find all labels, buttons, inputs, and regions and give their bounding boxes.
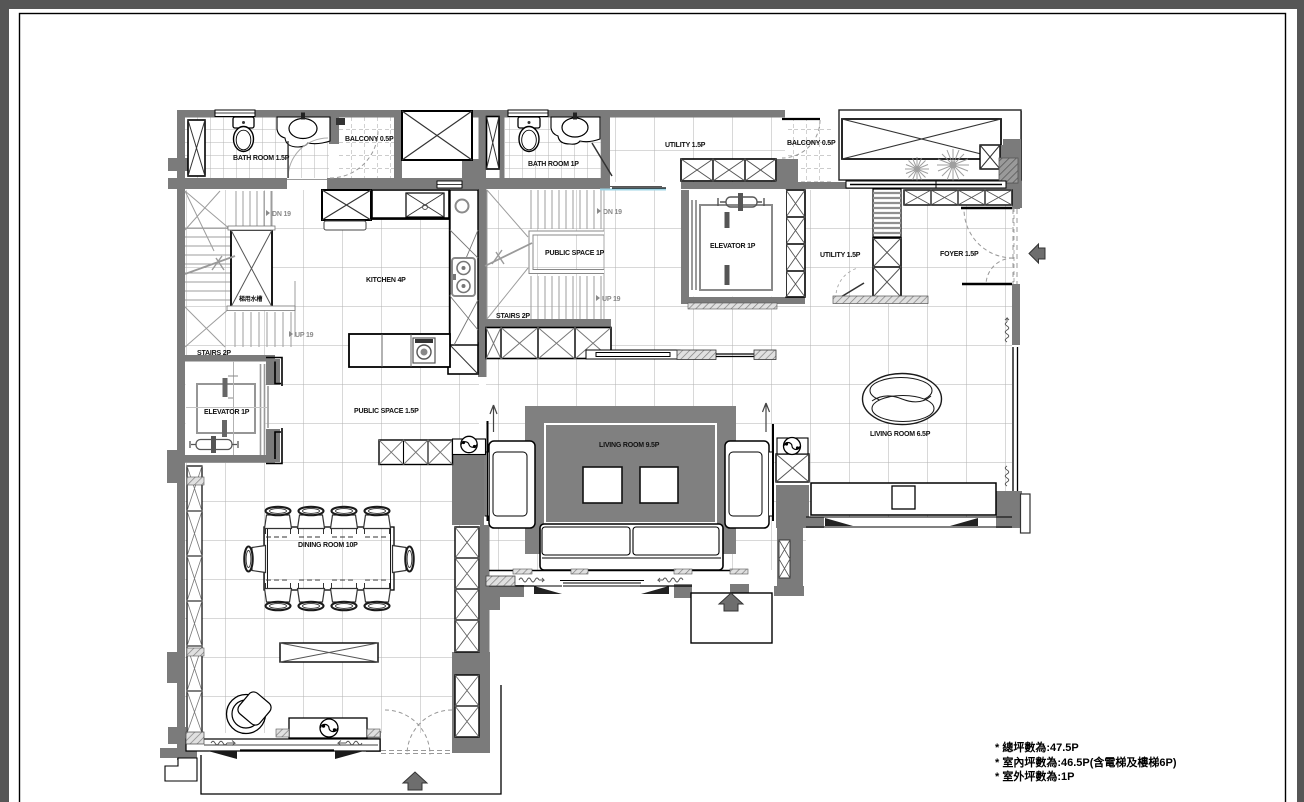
svg-text:DN 19: DN 19 [603,209,622,216]
svg-text:BALCONY 0.5P: BALCONY 0.5P [787,140,836,147]
svg-text:* 總坪數為:47.5P: * 總坪數為:47.5P [995,740,1079,754]
svg-text:BATH ROOM 1P: BATH ROOM 1P [528,161,579,168]
svg-text:STAIRS 2P: STAIRS 2P [197,350,231,357]
svg-text:ELEVATOR 1P: ELEVATOR 1P [204,409,250,416]
svg-text:PUBLIC SPACE 1.5P: PUBLIC SPACE 1.5P [354,408,419,415]
svg-text:STAIRS 2P: STAIRS 2P [496,313,530,320]
svg-text:梯用水槽: 梯用水槽 [239,295,262,303]
svg-text:FOYER 1.5P: FOYER 1.5P [940,251,979,258]
svg-text:UP 19: UP 19 [602,296,621,303]
svg-text:UTILITY 1.5P: UTILITY 1.5P [665,142,706,149]
svg-text:DN 19: DN 19 [272,211,291,218]
svg-text:KITCHEN 4P: KITCHEN 4P [366,277,406,284]
svg-text:UTILITY 1.5P: UTILITY 1.5P [820,252,861,259]
svg-text:UP 19: UP 19 [295,332,314,339]
svg-text:ELEVATOR 1P: ELEVATOR 1P [710,243,756,250]
svg-text:DINING ROOM 10P: DINING ROOM 10P [298,542,358,549]
svg-text:BALCONY 0.5P: BALCONY 0.5P [345,136,394,143]
svg-text:BATH ROOM 1.5P: BATH ROOM 1.5P [233,155,290,162]
svg-text:LIVING ROOM 9.5P: LIVING ROOM 9.5P [599,442,660,449]
svg-text:LIVING ROOM 6.5P: LIVING ROOM 6.5P [870,431,931,438]
svg-text:* 室內坪數為:46.5P(含電梯及樓梯6P): * 室內坪數為:46.5P(含電梯及樓梯6P) [995,755,1177,769]
svg-text:* 室外坪數為:1P: * 室外坪數為:1P [995,769,1074,783]
svg-text:PUBLIC SPACE 1P: PUBLIC SPACE 1P [545,250,605,257]
